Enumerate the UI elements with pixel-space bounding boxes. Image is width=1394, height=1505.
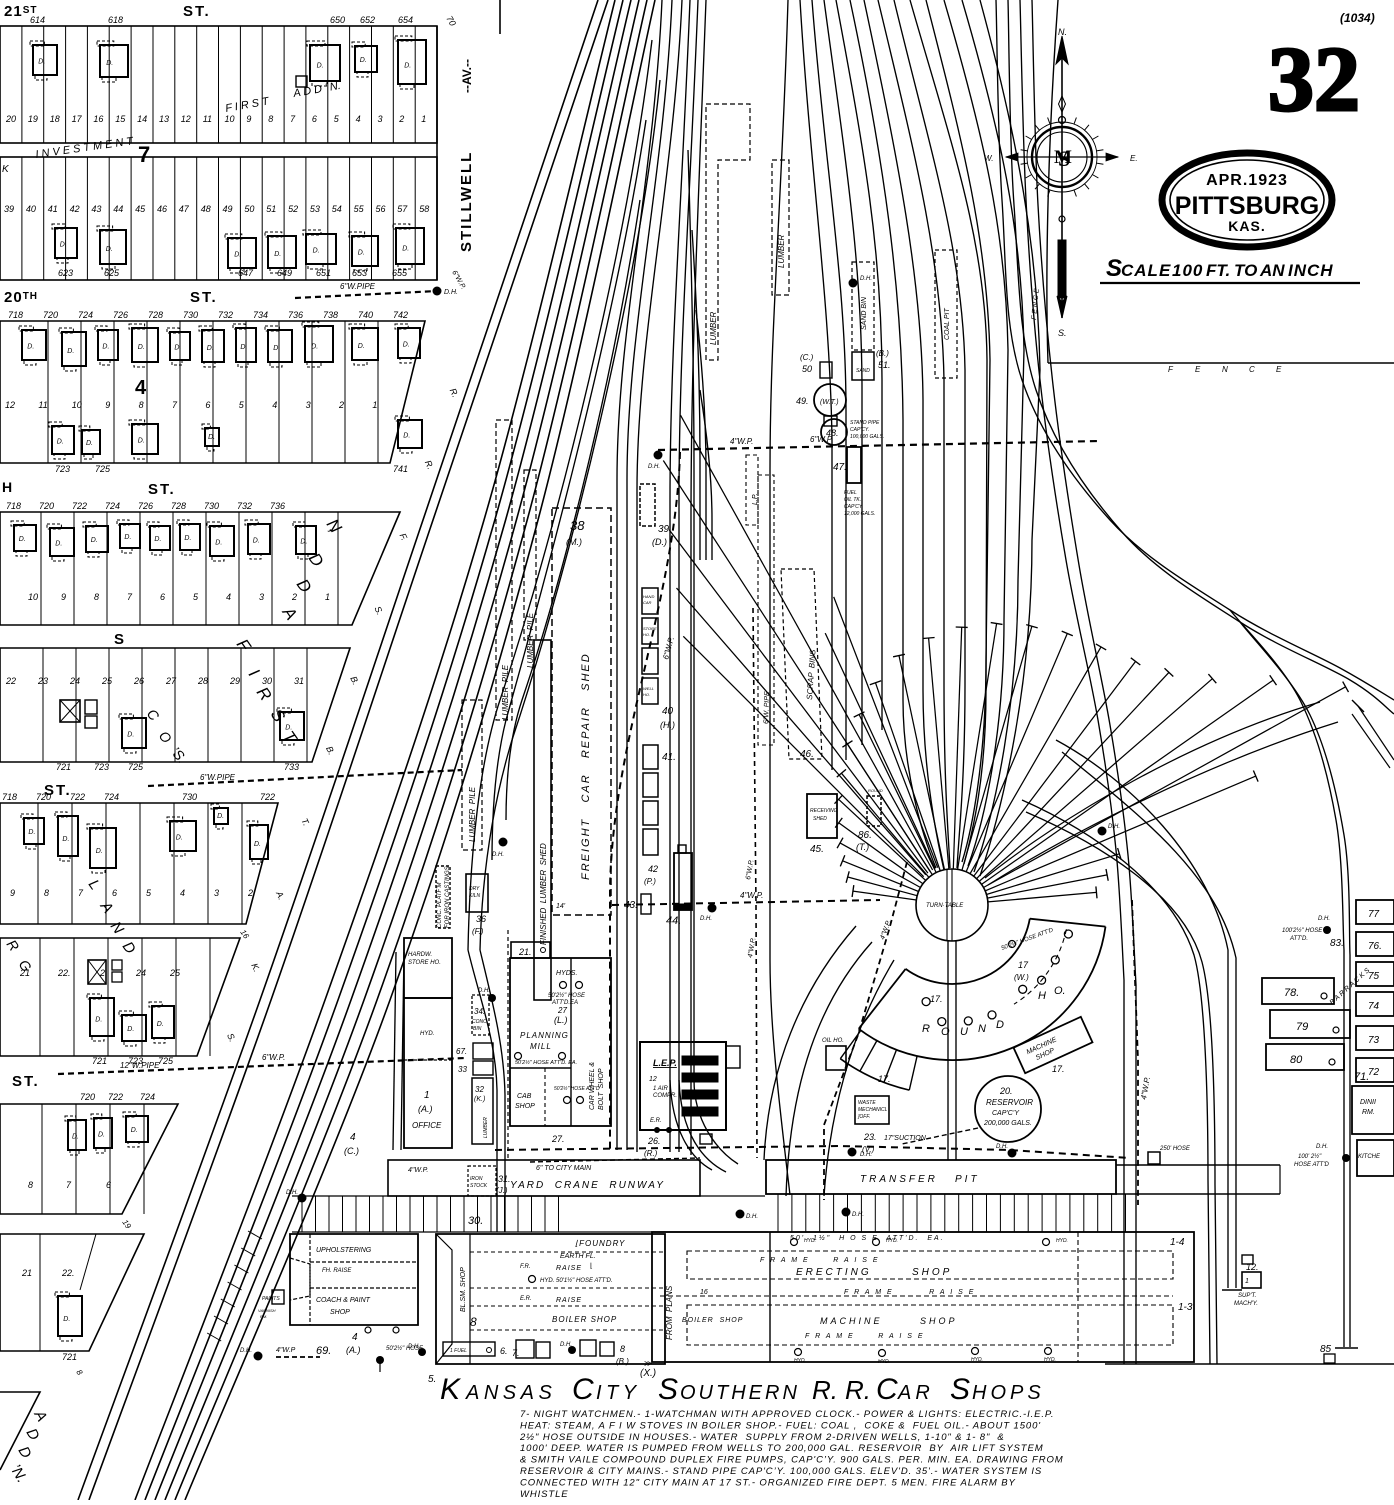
svg-text:725: 725 <box>128 762 144 772</box>
svg-text:CALE: CALE <box>1121 261 1171 280</box>
svg-text:E: E <box>1276 365 1282 374</box>
svg-text:738: 738 <box>323 310 338 320</box>
svg-text:72: 72 <box>1368 1067 1380 1078</box>
svg-text:S: S <box>658 1373 678 1406</box>
svg-text:21: 21 <box>19 968 30 978</box>
svg-text:D.: D. <box>358 250 365 257</box>
svg-text:19: 19 <box>28 114 38 124</box>
svg-text:1: 1 <box>424 1090 430 1101</box>
svg-text:40: 40 <box>662 706 674 717</box>
svg-text:6"W. PIPE: 6"W. PIPE <box>763 691 771 724</box>
svg-text:D.H.: D.H. <box>1316 1144 1328 1150</box>
svg-text:1: 1 <box>372 400 377 410</box>
svg-text:RM.: RM. <box>260 1314 267 1319</box>
svg-text:MACHINE: MACHINE <box>820 1316 883 1326</box>
svg-text:D.: D. <box>234 252 241 259</box>
svg-text:HOPS: HOPS <box>972 1382 1045 1404</box>
svg-text:CONC. PLATF’M: CONC. PLATF’M <box>437 882 443 928</box>
svg-text:D.: D. <box>403 342 410 349</box>
svg-text:4: 4 <box>356 114 361 124</box>
svg-text:CAR: CAR <box>643 600 652 605</box>
svg-text:618: 618 <box>108 15 123 25</box>
svg-text:SHOP: SHOP <box>515 1103 535 1110</box>
svg-text:LUMBER PILE: LUMBER PILE <box>501 664 510 720</box>
svg-text:(H.): (H.) <box>660 720 675 730</box>
svg-text:36: 36 <box>476 914 486 924</box>
svg-text:(X.): (X.) <box>640 1368 656 1379</box>
svg-text:2: 2 <box>291 592 297 602</box>
svg-text:D.H.: D.H. <box>996 1144 1008 1150</box>
svg-text:W.: W. <box>984 154 993 163</box>
svg-text:H: H <box>1038 990 1046 1002</box>
svg-text:N: N <box>978 1023 986 1035</box>
svg-text:100: 100 <box>1172 261 1203 280</box>
svg-text:HARDW.: HARDW. <box>408 952 432 958</box>
svg-text:D.: D. <box>124 534 131 541</box>
svg-text:100,000 GALS.: 100,000 GALS. <box>850 434 884 440</box>
svg-text:71.: 71. <box>1354 1071 1369 1083</box>
svg-text:D.: D. <box>300 538 307 545</box>
svg-text:D.: D. <box>403 432 410 439</box>
svg-text:D.: D. <box>91 537 98 544</box>
svg-text:51: 51 <box>266 204 276 214</box>
svg-text:726: 726 <box>138 501 153 511</box>
svg-text:N: N <box>1222 365 1228 374</box>
svg-text:43: 43 <box>91 204 101 214</box>
svg-text:MECHANICL: MECHANICL <box>858 1107 888 1113</box>
svg-text:730: 730 <box>204 501 219 511</box>
svg-text:RESERVOIR & CITY MAINS.- STAND: RESERVOIR & CITY MAINS.- STAND PIPE CAP'… <box>520 1466 1042 1477</box>
svg-text:11: 11 <box>203 114 212 124</box>
svg-text:14': 14' <box>556 903 566 910</box>
svg-text:623: 623 <box>58 268 73 278</box>
svg-text:49: 49 <box>223 204 233 214</box>
svg-text:22.: 22. <box>57 968 71 978</box>
svg-text:16: 16 <box>93 114 103 124</box>
svg-text:RM.: RM. <box>1362 1109 1375 1116</box>
svg-text:BIN: BIN <box>473 1026 482 1032</box>
svg-text:(L.): (L.) <box>554 1015 568 1025</box>
svg-text:12: 12 <box>649 1076 657 1083</box>
svg-text:39: 39 <box>4 204 14 214</box>
svg-text:D.H.: D.H. <box>478 988 490 994</box>
svg-text:FH. RAISE: FH. RAISE <box>322 1268 352 1274</box>
svg-text:E: E <box>1195 365 1201 374</box>
svg-text:26.: 26. <box>647 1136 661 1146</box>
svg-text:6: 6 <box>160 592 165 602</box>
svg-text:L.E.P.: L.E.P. <box>653 1058 677 1068</box>
svg-text:UPHOLSTERING: UPHOLSTERING <box>316 1247 372 1254</box>
svg-text:R: R <box>922 1023 930 1035</box>
svg-text:RECEIVING: RECEIVING <box>810 808 838 814</box>
svg-text:HYD.: HYD. <box>971 1357 983 1363</box>
svg-text:83.: 83. <box>1330 938 1344 949</box>
svg-text:52: 52 <box>288 204 298 214</box>
svg-text:S: S <box>1106 255 1122 282</box>
svg-text:ST.: ST. <box>12 1073 40 1090</box>
svg-text:41.: 41. <box>662 752 676 763</box>
svg-text:(F.): (F.) <box>472 927 484 936</box>
svg-text:50: 50 <box>244 204 254 214</box>
svg-text:23: 23 <box>37 676 48 686</box>
svg-text:MACH'Y.: MACH'Y. <box>1234 1301 1258 1307</box>
svg-text:FREIGHT CAR REPAIR SHED: FREIGHT CAR REPAIR SHED <box>580 652 592 880</box>
svg-text:734: 734 <box>253 310 268 320</box>
svg-text:STILLWELL: STILLWELL <box>458 151 475 252</box>
svg-text:77: 77 <box>1368 909 1380 920</box>
svg-text:17: 17 <box>72 114 83 124</box>
svg-text:730: 730 <box>183 310 198 320</box>
svg-text:57: 57 <box>397 204 408 214</box>
svg-text:725: 725 <box>95 464 111 474</box>
svg-text:D.: D. <box>19 536 26 543</box>
svg-text:SUP'T.: SUP'T. <box>1238 1293 1256 1299</box>
svg-text:15: 15 <box>115 114 126 124</box>
svg-text:6: 6 <box>205 400 210 410</box>
svg-text:D.: D. <box>176 835 183 842</box>
svg-text:721: 721 <box>56 762 71 772</box>
svg-text:32: 32 <box>475 1085 484 1094</box>
svg-text:10: 10 <box>28 592 38 602</box>
svg-text:27.: 27. <box>551 1134 565 1144</box>
svg-text:D.: D. <box>28 829 35 836</box>
svg-text:R.: R. <box>812 1375 838 1405</box>
svg-text:4"W.P.: 4"W.P. <box>408 1167 428 1174</box>
svg-text:HYD.: HYD. <box>886 1238 898 1244</box>
svg-text:1: 1 <box>1245 1278 1249 1285</box>
svg-text:647: 647 <box>238 268 254 278</box>
svg-text:D.H.: D.H. <box>860 1152 872 1158</box>
svg-text:D.H.: D.H. <box>852 1212 864 1218</box>
svg-text:74: 74 <box>1368 1001 1380 1012</box>
svg-text:1: 1 <box>325 592 330 602</box>
svg-text:E.: E. <box>1130 154 1138 163</box>
svg-text:D.: D. <box>154 536 161 543</box>
svg-text:RESERVOIR: RESERVOIR <box>986 1098 1033 1107</box>
svg-text:D.: D. <box>57 438 64 445</box>
svg-text:75: 75 <box>1368 971 1380 982</box>
svg-text:D.: D. <box>60 242 67 249</box>
svg-text:55: 55 <box>354 204 365 214</box>
svg-text:718: 718 <box>2 792 17 802</box>
svg-text:730: 730 <box>182 792 197 802</box>
svg-text:41: 41 <box>48 204 58 214</box>
svg-text:ANSAS: ANSAS <box>465 1382 556 1404</box>
svg-text:(K.): (K.) <box>474 1096 485 1103</box>
svg-text:D.: D. <box>27 344 34 351</box>
svg-text:4: 4 <box>272 400 277 410</box>
svg-text:KAS.: KAS. <box>1228 218 1265 234</box>
svg-text:732: 732 <box>237 501 252 511</box>
svg-text:49.: 49. <box>796 396 809 406</box>
svg-text:D.: D. <box>174 344 181 351</box>
svg-text:655: 655 <box>392 268 408 278</box>
svg-text:KITCHE: KITCHE <box>1358 1154 1381 1160</box>
svg-text:D.H.: D.H. <box>560 1342 572 1348</box>
svg-text:31: 31 <box>294 676 304 686</box>
svg-text:S.: S. <box>1058 328 1067 338</box>
svg-text:45.: 45. <box>810 844 824 855</box>
svg-text:D.: D. <box>67 348 74 355</box>
svg-text:HYD.: HYD. <box>794 1358 806 1364</box>
svg-text:20: 20 <box>5 114 16 124</box>
svg-text:25: 25 <box>169 968 181 978</box>
svg-text:D.: D. <box>273 345 280 352</box>
svg-text:723: 723 <box>94 762 109 772</box>
svg-text:12.: 12. <box>1246 1262 1259 1272</box>
svg-text:D.: D. <box>127 1026 134 1033</box>
svg-text:TO: TO <box>1234 261 1257 280</box>
svg-text:RAISE: RAISE <box>556 1265 582 1272</box>
svg-text:250' HOSE: 250' HOSE <box>1159 1146 1191 1152</box>
svg-text:HYD.: HYD. <box>804 1238 816 1244</box>
svg-text:720: 720 <box>36 792 51 802</box>
svg-text:25: 25 <box>101 676 113 686</box>
svg-text:725: 725 <box>158 1056 174 1066</box>
svg-text:FOR IRON CASTINGS: FOR IRON CASTINGS <box>445 866 451 928</box>
svg-text:740: 740 <box>358 310 373 320</box>
svg-text:D.: D. <box>240 344 247 351</box>
svg-text:D.H.: D.H. <box>1108 824 1120 830</box>
svg-text:1000' DEEP. WATER IS PUMPED FR: 1000' DEEP. WATER IS PUMPED FROM WELLS T… <box>520 1443 1044 1454</box>
svg-text:1 AIR: 1 AIR <box>653 1086 668 1092</box>
svg-text:D.: D. <box>106 246 113 253</box>
svg-text:10: 10 <box>225 114 235 124</box>
svg-text:736: 736 <box>288 310 303 320</box>
svg-text:HO.: HO. <box>643 692 650 697</box>
svg-text:(P.): (P.) <box>644 877 656 886</box>
svg-text:D.H.: D.H. <box>746 1214 758 1220</box>
svg-text:26: 26 <box>133 676 144 686</box>
svg-text:(W.): (W.) <box>1014 973 1029 982</box>
svg-text:HYD. 50'1½" HOSE ATT'D.: HYD. 50'1½" HOSE ATT'D. <box>540 1277 612 1284</box>
svg-text:ROUND: ROUND <box>868 788 883 793</box>
svg-text:3: 3 <box>378 114 383 124</box>
svg-text:D.: D. <box>127 732 134 739</box>
svg-text:D.: D. <box>62 836 69 843</box>
svg-text:E.R.: E.R. <box>520 1296 532 1302</box>
svg-text:86.: 86. <box>858 830 872 841</box>
svg-text:D.H.: D.H. <box>1318 916 1330 922</box>
svg-text:4"W.P: 4"W.P <box>276 1347 296 1354</box>
svg-text:SHED: SHED <box>813 816 827 822</box>
svg-text:KILN: KILN <box>469 893 481 899</box>
svg-text:22: 22 <box>5 676 16 686</box>
svg-text:73: 73 <box>1368 1035 1380 1046</box>
svg-text:D.: D. <box>215 540 222 547</box>
svg-text:BOILER SHOP: BOILER SHOP <box>552 1315 617 1324</box>
svg-text:12"W.PIPE: 12"W.PIPE <box>120 1061 160 1070</box>
svg-text:HYD.: HYD. <box>1044 1357 1056 1363</box>
svg-text:13: 13 <box>159 114 169 124</box>
svg-text:722: 722 <box>70 792 85 802</box>
svg-text:FUEL: FUEL <box>844 490 857 496</box>
svg-text:722: 722 <box>72 501 87 511</box>
svg-text:]OFF.: ]OFF. <box>857 1114 870 1120</box>
svg-text:718: 718 <box>8 310 23 320</box>
svg-text:1 FUEL: 1 FUEL <box>450 1348 467 1354</box>
svg-text:INCH: INCH <box>1288 261 1334 280</box>
svg-text:& SMITH VAILE COMPOUND DUPLEX: & SMITH VAILE COMPOUND DUPLEX FIRE PUMPS… <box>520 1455 1064 1466</box>
svg-text:720: 720 <box>80 1092 95 1102</box>
svg-text:11: 11 <box>38 400 47 410</box>
svg-text:ERECTING: ERECTING <box>796 1267 872 1278</box>
svg-text:CAP'CY.: CAP'CY. <box>850 427 869 433</box>
svg-text:722: 722 <box>260 792 275 802</box>
svg-text:F.R.: F.R. <box>520 1264 531 1270</box>
svg-text:BL.SM. SHOP: BL.SM. SHOP <box>460 1267 467 1312</box>
svg-text:LUMBER: LUMBER <box>777 234 786 268</box>
svg-text:51.: 51. <box>878 360 891 370</box>
svg-text:46.: 46. <box>800 749 814 760</box>
svg-text:SAND BIN: SAND BIN <box>861 296 868 330</box>
svg-text:20.: 20. <box>999 1086 1013 1096</box>
svg-text:48: 48 <box>201 204 211 214</box>
svg-text:6.: 6. <box>500 1346 508 1356</box>
svg-text:E.R.: E.R. <box>650 1118 662 1124</box>
svg-text:24: 24 <box>135 968 146 978</box>
svg-text:D.: D. <box>106 60 113 67</box>
svg-text:39: 39 <box>658 524 670 535</box>
svg-text:ITY: ITY <box>596 1382 641 1404</box>
svg-text:50'2½" HOSE: 50'2½" HOSE <box>548 992 586 999</box>
svg-text:D.H.: D.H. <box>240 1348 252 1354</box>
svg-text:17.: 17. <box>878 1074 891 1084</box>
svg-text:VARNISH: VARNISH <box>258 1308 276 1313</box>
svg-text:S: S <box>1058 146 1070 171</box>
svg-text:O: O <box>941 1026 950 1038</box>
svg-text:720: 720 <box>39 501 54 511</box>
svg-text:CAB: CAB <box>517 1093 532 1100</box>
svg-text:54: 54 <box>332 204 342 214</box>
svg-text:(R.): (R.) <box>644 1149 658 1158</box>
svg-text:STAND PIPE: STAND PIPE <box>850 420 880 426</box>
svg-text:D.: D. <box>138 438 145 445</box>
svg-text:721: 721 <box>62 1352 77 1362</box>
svg-text:COAL PIT: COAL PIT <box>944 308 951 340</box>
svg-text:D.: D. <box>404 62 411 69</box>
svg-text:30.: 30. <box>468 1215 483 1227</box>
svg-text:21: 21 <box>21 1268 32 1278</box>
svg-text:SAND: SAND <box>856 368 870 374</box>
svg-text:WHISTLE: WHISTLE <box>520 1489 569 1500</box>
svg-text:2: 2 <box>398 114 404 124</box>
svg-text:--AV.--: --AV.-- <box>460 59 474 93</box>
svg-text:12: 12 <box>181 114 191 124</box>
svg-text:47: 47 <box>179 204 190 214</box>
svg-text:732: 732 <box>218 310 233 320</box>
svg-text:D.H.: D.H. <box>444 289 458 296</box>
svg-text:3: 3 <box>306 400 311 410</box>
svg-text:32: 32 <box>1268 28 1360 130</box>
svg-text:718: 718 <box>6 501 21 511</box>
svg-text:CAR WHEEL &: CAR WHEEL & <box>589 1062 596 1110</box>
svg-text:D.: D. <box>63 1316 70 1323</box>
svg-text:58: 58 <box>419 204 429 214</box>
svg-text:ATT'D.: ATT'D. <box>1289 936 1308 942</box>
svg-text:STOCK: STOCK <box>470 1183 488 1189</box>
svg-text:38: 38 <box>570 518 585 533</box>
svg-text:721: 721 <box>92 1056 107 1066</box>
svg-text:⌊: ⌊ <box>590 1262 593 1270</box>
svg-text:79: 79 <box>1296 1021 1308 1033</box>
svg-text:7: 7 <box>138 142 150 167</box>
svg-text:H: H <box>2 479 12 495</box>
svg-text:S: S <box>950 1373 970 1406</box>
svg-text:≫: ≫ <box>644 1359 652 1368</box>
svg-text:D.H.: D.H. <box>648 464 660 470</box>
svg-text:K: K <box>440 1373 462 1406</box>
svg-text:722: 722 <box>108 1092 123 1102</box>
svg-text:5.: 5. <box>428 1374 436 1385</box>
svg-text:16: 16 <box>700 1289 708 1296</box>
svg-text:DRY: DRY <box>469 886 480 892</box>
svg-text:42: 42 <box>70 204 80 214</box>
svg-text:100'2½" HOSE: 100'2½" HOSE <box>1282 927 1323 934</box>
svg-text:17.: 17. <box>1052 1064 1065 1074</box>
svg-text:724: 724 <box>78 310 93 320</box>
svg-text:8: 8 <box>268 114 273 124</box>
svg-text:(C.): (C.) <box>800 353 814 362</box>
svg-text:80: 80 <box>1290 1054 1303 1066</box>
svg-text:HOSE ATT'D: HOSE ATT'D <box>1294 1162 1329 1168</box>
svg-text:OFFICE: OFFICE <box>412 1121 442 1130</box>
svg-text:HYD.: HYD. <box>420 1031 434 1037</box>
svg-text:27: 27 <box>165 676 177 686</box>
svg-text:RAISE: RAISE <box>556 1297 582 1304</box>
svg-text:FINISHED LUMBER SHED: FINISHED LUMBER SHED <box>539 843 548 945</box>
svg-text:(C.): (C.) <box>344 1146 359 1156</box>
svg-text:651: 651 <box>316 268 331 278</box>
svg-text:CAP'CY.: CAP'CY. <box>844 504 863 510</box>
svg-text:C: C <box>876 1373 898 1406</box>
svg-text:14: 14 <box>137 114 147 124</box>
svg-text:D.H.: D.H. <box>286 1190 298 1196</box>
svg-text:D.: D. <box>208 434 215 441</box>
svg-text:724: 724 <box>104 792 119 802</box>
svg-text:4: 4 <box>352 1332 358 1343</box>
svg-text:17: 17 <box>1018 960 1029 970</box>
svg-text:APR.1923: APR.1923 <box>1206 172 1288 189</box>
svg-text:D.: D. <box>138 344 145 351</box>
svg-text:6: 6 <box>112 888 117 898</box>
svg-text:HEAT: STEAM, A F I W STOVES IN: HEAT: STEAM, A F I W STOVES IN BOILER SH… <box>520 1420 1041 1431</box>
svg-text:24: 24 <box>69 676 80 686</box>
svg-text:OIL TK.: OIL TK. <box>844 497 861 503</box>
svg-text:31.: 31. <box>498 1174 511 1184</box>
svg-text:(J.): (J.) <box>496 1186 508 1195</box>
svg-text:50'2½" HOSE: 50'2½" HOSE <box>386 1345 424 1352</box>
svg-text:STORE: STORE <box>643 626 657 631</box>
svg-text:PAINTS: PAINTS <box>262 1296 280 1302</box>
svg-text:D.: D. <box>207 345 214 352</box>
svg-text:9: 9 <box>61 592 66 602</box>
svg-text:(T.): (T.) <box>856 842 869 852</box>
svg-text:34.: 34. <box>474 1007 485 1016</box>
svg-text:O.: O. <box>1054 985 1066 997</box>
svg-text:3: 3 <box>214 888 219 898</box>
svg-text:D.: D. <box>358 343 365 350</box>
svg-text:SHOP: SHOP <box>920 1316 958 1326</box>
svg-text:D.: D. <box>55 540 62 547</box>
svg-text:4: 4 <box>180 888 185 898</box>
svg-text:(B.): (B.) <box>616 1357 629 1366</box>
svg-text:D.: D. <box>86 440 93 447</box>
svg-text:9: 9 <box>10 888 15 898</box>
svg-text:(A.): (A.) <box>346 1345 361 1355</box>
svg-text:50'2½" HOSE ATT'D. EA.: 50'2½" HOSE ATT'D. EA. <box>515 1059 577 1066</box>
svg-text:C: C <box>572 1373 594 1406</box>
